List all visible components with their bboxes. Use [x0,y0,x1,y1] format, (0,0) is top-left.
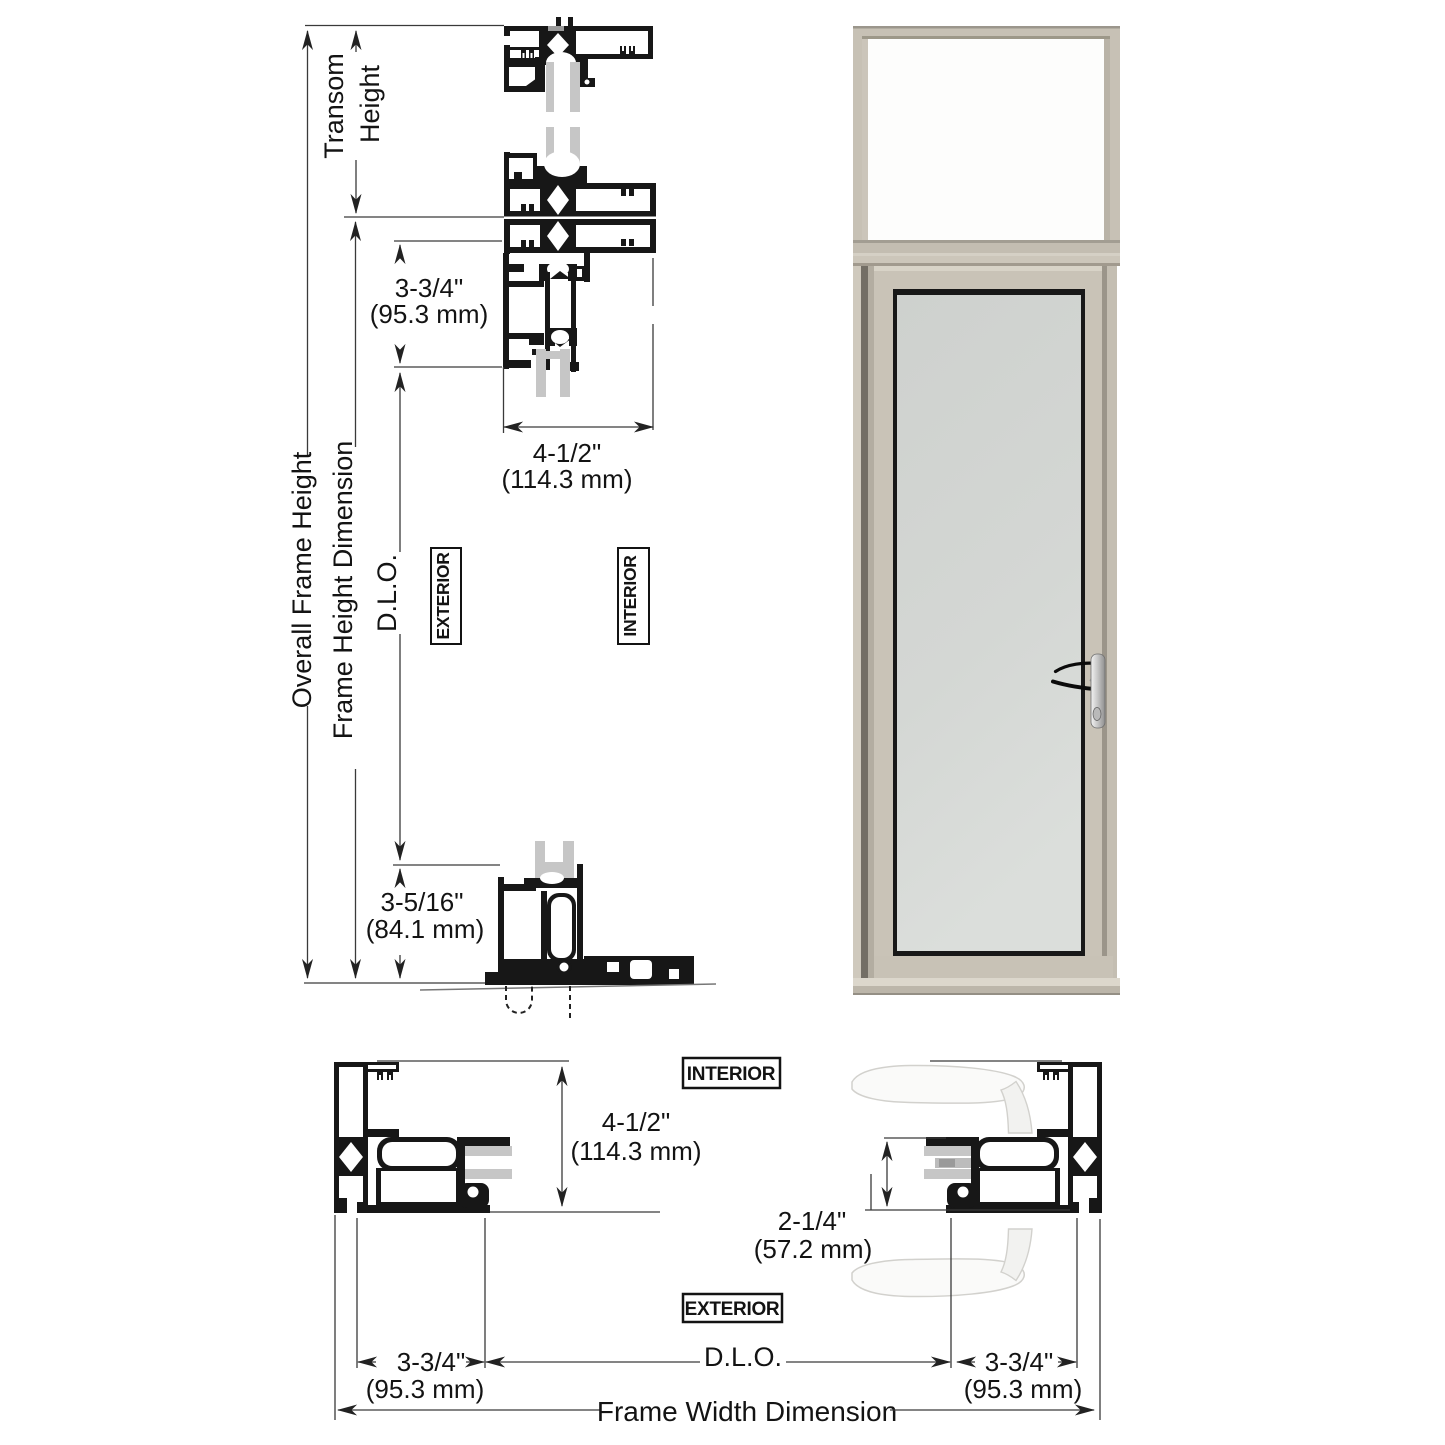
svg-text:(95.3 mm): (95.3 mm) [964,1374,1082,1404]
svg-text:(95.3 mm): (95.3 mm) [370,299,488,329]
svg-text:(57.2 mm): (57.2 mm) [754,1234,872,1264]
svg-text:INTERIOR: INTERIOR [620,555,640,637]
svg-text:4-1/2": 4-1/2" [602,1107,671,1137]
svg-text:2-1/4": 2-1/4" [778,1206,847,1236]
svg-text:(114.3 mm): (114.3 mm) [571,1136,702,1166]
svg-text:D.L.O.: D.L.O. [704,1342,782,1372]
svg-text:D.L.O.: D.L.O. [372,554,402,632]
svg-text:INTERIOR: INTERIOR [687,1064,776,1085]
svg-text:(95.3 mm): (95.3 mm) [366,1374,484,1404]
svg-text:EXTERIOR: EXTERIOR [433,552,453,640]
svg-text:Frame Height Dimension: Frame Height Dimension [328,441,358,740]
svg-text:3-3/4": 3-3/4" [985,1347,1054,1377]
svg-text:Transom: Transom [319,53,349,159]
svg-text:Frame Width Dimension: Frame Width Dimension [597,1396,897,1427]
svg-text:3-3/4": 3-3/4" [397,1347,466,1377]
svg-text:(114.3 mm): (114.3 mm) [502,464,633,494]
svg-text:Overall Frame Height: Overall Frame Height [287,451,317,708]
svg-text:EXTERIOR: EXTERIOR [685,1299,780,1320]
svg-text:3-5/16": 3-5/16" [381,887,464,917]
svg-text:Height: Height [355,64,385,143]
svg-text:(84.1 mm): (84.1 mm) [366,914,484,944]
